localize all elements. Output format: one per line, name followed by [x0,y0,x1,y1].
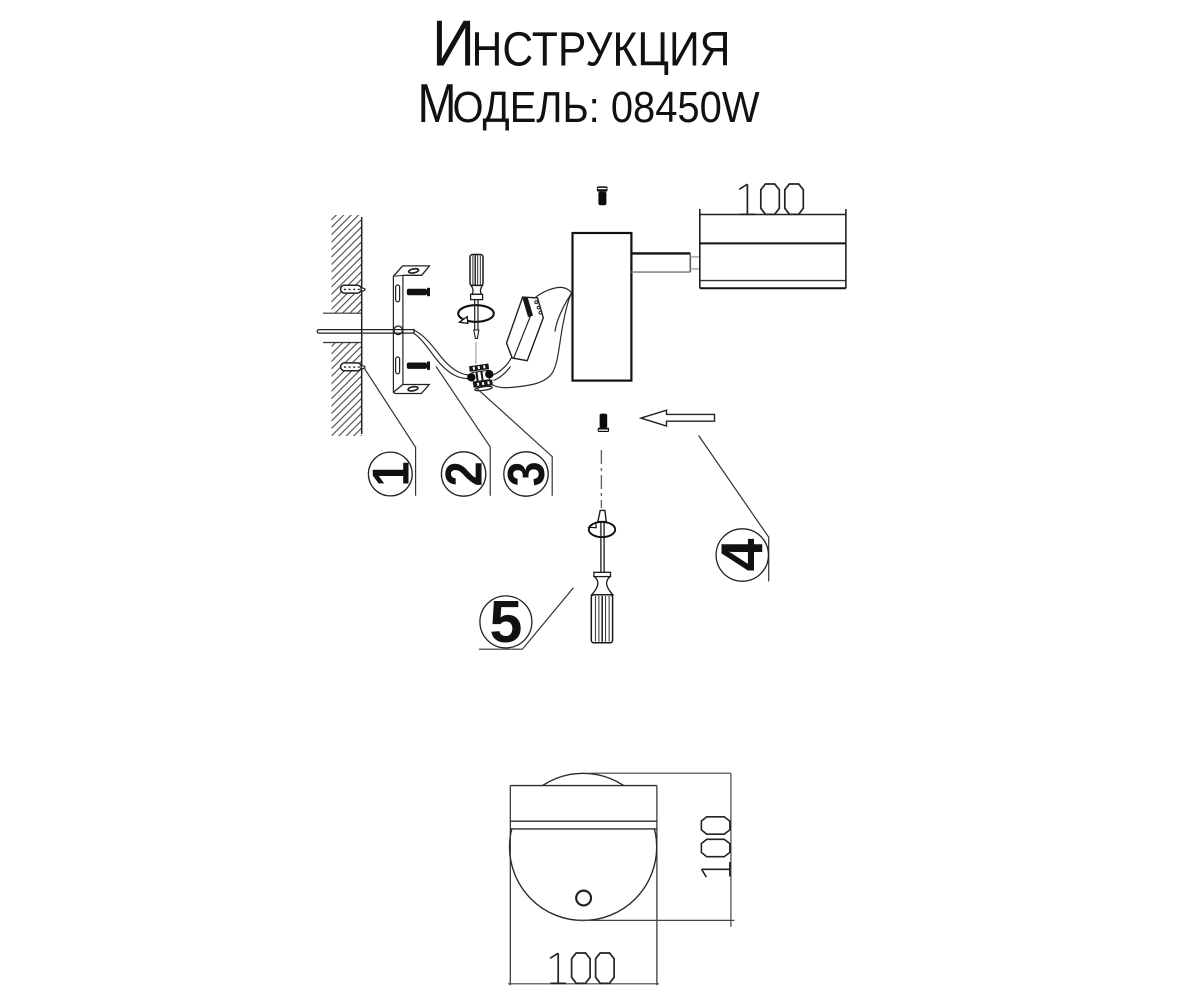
svg-text:И: И [432,7,475,80]
svg-text:НСТРУКЦИЯ: НСТРУКЦИЯ [472,24,731,77]
svg-text:2: 2 [435,462,493,487]
svg-text:4: 4 [710,538,776,571]
svg-text:1: 1 [362,462,420,487]
svg-text:ОДЕЛЬ: 08450W: ОДЕЛЬ: 08450W [453,84,760,132]
svg-text:М: М [418,73,457,134]
svg-text:3: 3 [498,462,556,487]
svg-text:5: 5 [489,589,522,655]
